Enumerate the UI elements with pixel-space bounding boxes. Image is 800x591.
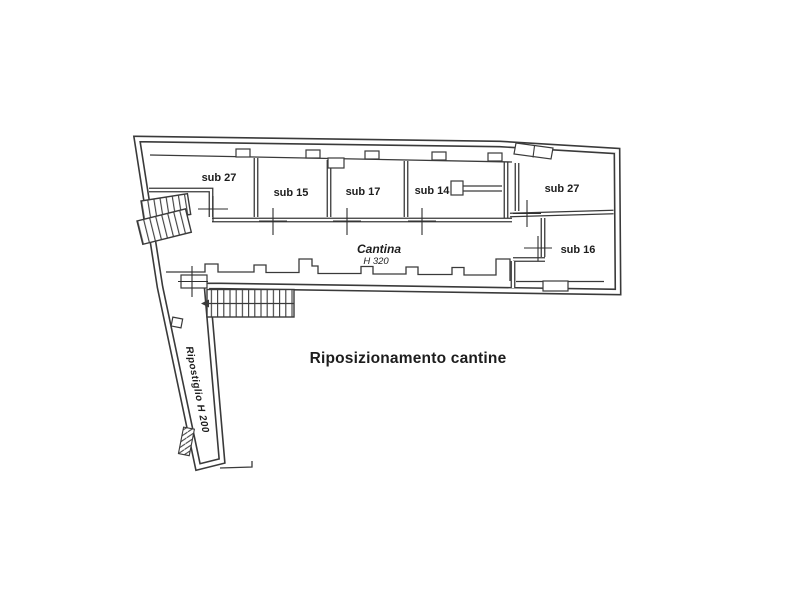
top-step-notch bbox=[328, 158, 344, 168]
room-label-sub14: sub 14 bbox=[415, 185, 451, 197]
top-pilaster-notch bbox=[236, 149, 250, 157]
top-pilaster-notch bbox=[488, 153, 502, 161]
top-pilaster-notch bbox=[306, 150, 320, 158]
staircase-left bbox=[137, 194, 191, 245]
top-pilaster-notch bbox=[432, 152, 446, 160]
sub14-fixture bbox=[451, 181, 463, 195]
room-label-sub17: sub 17 bbox=[346, 186, 381, 198]
room-label-sub27-right: sub 27 bbox=[545, 183, 580, 195]
room-label-sub15: sub 15 bbox=[274, 187, 309, 199]
room-label-sub16: sub 16 bbox=[561, 244, 596, 256]
bottom-door-recess bbox=[543, 281, 568, 291]
floor-plan-page: sub 27 sub 15 sub 17 sub 14 sub 27 sub 1… bbox=[0, 0, 800, 591]
staircase-bottom bbox=[201, 290, 294, 318]
room-label-sub27-left: sub 27 bbox=[202, 172, 237, 184]
top-pilaster-notch bbox=[365, 151, 379, 159]
cantina-height-label: H 320 bbox=[363, 256, 389, 267]
floor-plan-drawing: sub 27 sub 15 sub 17 sub 14 sub 27 sub 1… bbox=[0, 0, 800, 591]
plan-caption: Riposizionamento cantine bbox=[310, 350, 507, 367]
corridor-wall-jog bbox=[171, 317, 183, 328]
cantina-room-label: Cantina bbox=[357, 242, 401, 256]
